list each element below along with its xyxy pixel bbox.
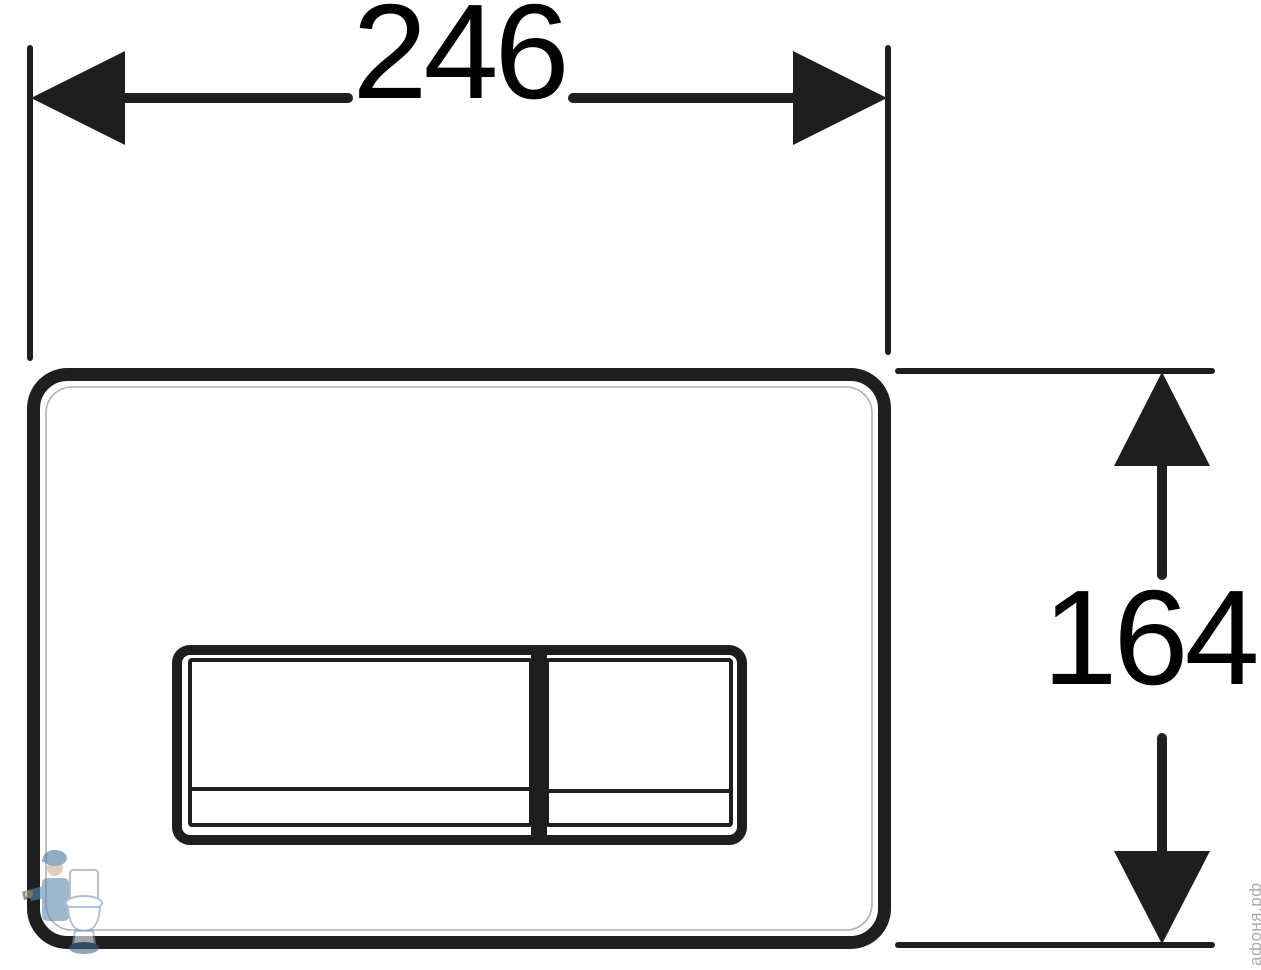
button-bevel-lines — [192, 789, 729, 791]
arrow-up-icon — [1114, 372, 1210, 466]
drawing-svg — [0, 0, 1261, 970]
width-dimension-label: 246 — [352, 0, 565, 119]
height-dimension-label: 164 — [1042, 570, 1255, 705]
plumber-body — [42, 878, 69, 921]
toilet-base — [69, 942, 99, 954]
button-panel — [177, 650, 742, 840]
arrow-right-icon — [793, 51, 887, 145]
arrow-left-icon — [31, 51, 125, 145]
plumber-cap — [43, 850, 67, 866]
technical-drawing-canvas: 246 164 афоня.рф — [0, 0, 1261, 970]
site-watermark-text: афоня.рф — [1246, 882, 1261, 966]
button-divider — [531, 652, 547, 838]
plumber-hand — [25, 890, 33, 898]
plumber-cap-brim — [42, 859, 55, 862]
arrow-down-icon — [1114, 851, 1210, 944]
